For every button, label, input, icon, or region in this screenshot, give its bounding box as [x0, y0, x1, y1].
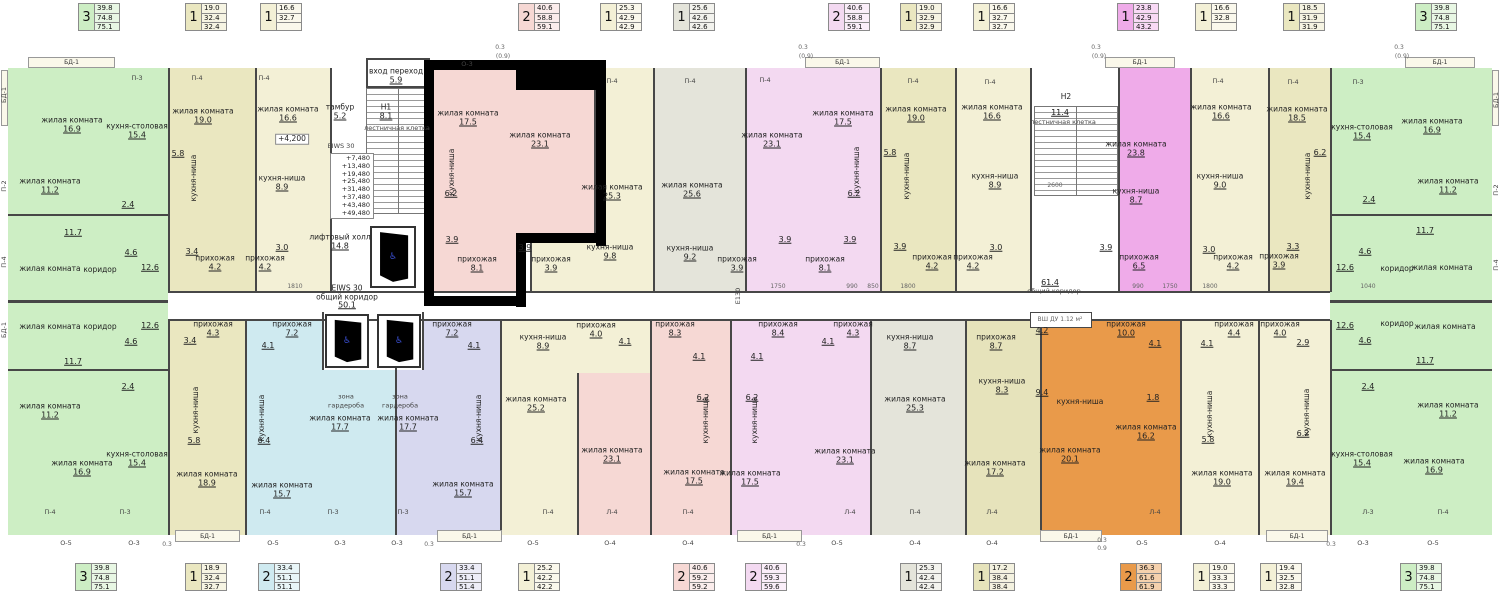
label-text: 9.2	[667, 253, 714, 262]
room-label: 11.7	[64, 229, 82, 238]
label-text: кухня-ниша	[1304, 153, 1313, 200]
label-text: 17.5	[663, 477, 724, 486]
apartment-region[interactable]	[168, 320, 245, 535]
label-text: 8.7	[887, 342, 934, 351]
room-label: лестничная клетка	[1030, 118, 1096, 127]
label-text: 17.5	[437, 118, 498, 127]
label-text: 1	[901, 564, 916, 590]
room-label: Л-4	[1149, 508, 1160, 517]
room-label: 3.0	[276, 244, 289, 253]
label-text: 61.9	[1137, 583, 1161, 592]
label-text: жилая комната	[19, 323, 80, 332]
label-text: БД-1	[200, 533, 215, 540]
apartment-badge[interactable]: 125.342.942.9	[600, 3, 642, 31]
label-text: 3.9	[519, 244, 532, 253]
label-text: лестничная клетка	[364, 124, 430, 133]
label-text: 32.4	[202, 23, 226, 32]
room-label: коридор	[1380, 265, 1413, 274]
label-text: 6.2	[746, 394, 759, 403]
label-text: 4.6	[125, 249, 138, 258]
label-text: Е130	[734, 288, 743, 305]
room-label: 4.1	[262, 342, 275, 351]
apartment-badge[interactable]: 119.032.432.4	[185, 3, 227, 31]
room-label: О-4	[986, 539, 998, 548]
label-text: 51.1	[275, 574, 299, 584]
apartment-badge[interactable]: 119.432.532.8	[1260, 563, 1302, 591]
wall	[1330, 214, 1492, 216]
apartment-badge[interactable]: 339.874.875.1	[75, 563, 117, 591]
label-text: 16.9	[51, 468, 112, 477]
room-label: жилая комната	[1414, 323, 1475, 332]
apartment-region[interactable]	[1180, 320, 1258, 535]
label-text: коридор	[1380, 320, 1413, 329]
label-text: 4.1	[751, 353, 764, 362]
label-text: 850	[867, 283, 878, 292]
apartment-badge[interactable]: 123.842.943.2	[1117, 3, 1159, 31]
label-text: 36.3	[1137, 564, 1161, 574]
wall	[1330, 300, 1492, 303]
label-text: 2	[441, 564, 456, 590]
label-text: П-4	[1437, 508, 1448, 517]
room-label: 0.3	[424, 541, 434, 550]
label-text: 1	[674, 4, 689, 30]
label-text: БД-1	[1064, 533, 1079, 540]
label-text: 16.6	[961, 112, 1022, 121]
label-text: 4.1	[468, 342, 481, 351]
apartment-badge[interactable]: 119.032.932.9	[900, 3, 942, 31]
label-text: О-3	[461, 60, 473, 69]
room-label: П-4	[1492, 259, 1500, 270]
room-label: П-4	[682, 508, 693, 517]
label-text: П-4	[907, 77, 918, 86]
label-text: 31.9	[1300, 14, 1324, 24]
label-text: 32.7	[990, 14, 1014, 24]
label-text: 3.9	[844, 236, 857, 245]
apartment-badge[interactable]: 125.642.642.6	[673, 3, 715, 31]
room-label: прихожая8.1	[805, 256, 844, 273]
label-text: 40.6	[762, 564, 786, 574]
apartment-region[interactable]	[870, 320, 965, 535]
room-label: жилая комната19.0	[1191, 470, 1252, 487]
label-text: О-3	[334, 539, 346, 548]
room-label: П-4	[259, 508, 270, 517]
label-text: 3.9	[1259, 261, 1298, 270]
label-text: 75.1	[1432, 23, 1456, 32]
wall	[1330, 68, 1332, 292]
room-label: жилая комната15.7	[251, 482, 312, 499]
room-label: кухня-ниша9.8	[587, 244, 634, 261]
room-label: жилая комната17.5	[812, 110, 873, 127]
apartment-badge[interactable]: 117.238.438.4	[973, 563, 1015, 591]
label-text: 59.1	[535, 23, 559, 32]
label-text: 1	[901, 4, 916, 30]
label-text: 9.8	[587, 252, 634, 261]
label-text: 3.9	[717, 264, 756, 273]
label-text: 1	[601, 4, 616, 30]
room-label: П-4	[759, 76, 770, 85]
room-label: 3.9	[844, 236, 857, 245]
label-text: 6.2	[1314, 149, 1327, 158]
room-label: 4.6	[125, 249, 138, 258]
label-text: 1	[186, 564, 201, 590]
badge-areas: 16.632.732.7	[989, 4, 1014, 30]
label-text: 8.7	[1113, 196, 1160, 205]
room-label: кухня-ниша	[190, 155, 199, 202]
label-text: БД-1	[64, 59, 79, 66]
label-text: Л-4	[606, 508, 617, 517]
room-label: прихожая8.7	[976, 334, 1015, 351]
room-label: О-5	[527, 539, 539, 548]
label-text: 1	[1196, 4, 1211, 30]
label-text: (0.9)	[496, 53, 510, 62]
label-text: 16.6	[1190, 112, 1251, 121]
room-label: Н18.1	[380, 104, 393, 121]
wall	[1040, 320, 1042, 535]
label-text: О-5	[267, 539, 279, 548]
apartment-badge[interactable]: 233.451.151.1	[258, 563, 300, 591]
apartment-badge[interactable]: 118.932.432.7	[185, 563, 227, 591]
label-text: 32.4	[202, 14, 226, 24]
room-label: 3.9	[779, 236, 792, 245]
label-text: П-4	[1492, 259, 1500, 270]
apartment-badge[interactable]: 118.531.931.9	[1283, 3, 1325, 31]
room-label: жилая комната16.6	[257, 106, 318, 123]
label-text: 32.7	[990, 23, 1014, 32]
label-text: 4.6	[1359, 248, 1372, 257]
label-text: 32.4	[202, 574, 226, 584]
label-text: 11.7	[1416, 227, 1434, 236]
label-text: 16.6	[277, 4, 301, 14]
label-text: (0.9)	[1092, 53, 1106, 62]
balcony: БД-1	[437, 530, 502, 542]
room-label: 4.1	[1149, 340, 1162, 349]
room-label: коридор	[83, 266, 116, 275]
label-text: 2	[259, 564, 274, 590]
label-text: 32.8	[1212, 14, 1236, 24]
label-text: 1800	[1202, 283, 1217, 292]
label-text: 3.9	[531, 264, 570, 273]
wall	[650, 320, 652, 535]
label-text: 17.2	[964, 468, 1025, 477]
label-text: 1.8	[1147, 394, 1160, 403]
label-text: 2.9	[1297, 339, 1310, 348]
room-label: 0.3	[162, 541, 172, 550]
room-label: 2.9	[1297, 339, 1310, 348]
label-text: 42.9	[1134, 14, 1158, 24]
room-label: П-4	[258, 74, 269, 83]
wall	[730, 320, 732, 535]
label-text: БД-1	[462, 533, 477, 540]
room-label: зонагардероба	[382, 393, 418, 410]
wall	[245, 320, 247, 535]
label-text: гардероба	[328, 401, 364, 410]
label-text: 4.1	[822, 338, 835, 347]
room-label: П-2	[1492, 184, 1500, 195]
room-label: 4.1	[468, 342, 481, 351]
room-label: жилая комната17.5	[437, 110, 498, 127]
label-text: 42.2	[535, 583, 559, 592]
label-text: +49,480	[334, 210, 370, 218]
room-label: кухня-ниша	[751, 397, 760, 444]
room-label: 11.4	[1051, 109, 1069, 118]
label-text: 19.4	[1277, 564, 1301, 574]
label-text: 8.3	[979, 386, 1026, 395]
badge-areas: 25.642.642.6	[689, 4, 714, 30]
label-text: 4.1	[1149, 340, 1162, 349]
apartment-badge[interactable]: 240.659.259.2	[673, 563, 715, 591]
label-text: 11.7	[1416, 357, 1434, 366]
apartment-region[interactable]	[1258, 320, 1330, 535]
room-label: жилая комната16.6	[1190, 104, 1251, 121]
room-label: 3.4	[184, 337, 197, 346]
label-text: О-4	[1214, 539, 1226, 548]
apartment-badge[interactable]: 240.658.859.1	[828, 3, 870, 31]
room-label: жилая комната16.9	[1401, 118, 1462, 135]
label-text: 17.5	[812, 118, 873, 127]
label-text: 16.6	[257, 114, 318, 123]
label-text: 16.2	[1115, 432, 1176, 441]
label-text: 3.9	[894, 243, 907, 252]
badge-areas: 40.658.859.1	[534, 4, 559, 30]
apartment-badge[interactable]: 339.874.875.1	[78, 3, 120, 31]
label-text: 3.3	[1287, 243, 1300, 252]
room-label: 0.3	[796, 541, 806, 550]
label-text: Л-4	[1149, 508, 1160, 517]
label-text: 0.3	[495, 44, 505, 53]
wall	[8, 214, 168, 216]
apartment-region[interactable]	[1330, 302, 1492, 535]
label-text: 25.6	[661, 190, 722, 199]
label-text: 25.3	[917, 564, 941, 574]
label-text: 23.1	[509, 140, 570, 149]
room-label: (0.9)	[799, 53, 813, 62]
room-label: 1800	[900, 283, 915, 292]
label-text: 58.8	[845, 14, 869, 24]
room-label: прихожая3.9	[1259, 253, 1298, 270]
apartment-badge[interactable]: 125.342.442.4	[900, 563, 942, 591]
badge-areas: 33.451.151.1	[274, 564, 299, 590]
label-text: 16.9	[1401, 126, 1462, 135]
room-label: 0.3	[1326, 541, 1336, 550]
badge-areas: 39.874.875.1	[94, 4, 119, 30]
label-text: 3.0	[276, 244, 289, 253]
label-text: 19.4	[1264, 478, 1325, 487]
label-text: 38.4	[990, 583, 1014, 592]
label-text: БД-1	[762, 533, 777, 540]
label-text: П-3	[131, 74, 142, 83]
label-text: П-4	[909, 508, 920, 517]
room-label: кухня-ниша	[1206, 391, 1215, 438]
room-label: П-3	[327, 508, 338, 517]
apartment-badge[interactable]: 240.658.859.1	[518, 3, 560, 31]
label-text: 31.9	[1300, 23, 1324, 32]
room-label: жилая комната16.6	[961, 104, 1022, 121]
label-text: кухня-ниша	[190, 155, 199, 202]
room-label: (0.9)	[1092, 53, 1106, 62]
room-label: О-3	[1357, 539, 1369, 548]
elevator-icon: ♿	[325, 314, 369, 368]
label-text: 11.7	[64, 358, 82, 367]
apartment-badge[interactable]: 125.242.242.2	[518, 563, 560, 591]
room-label: 11.7	[1416, 357, 1434, 366]
room-label: прихожая4.0	[1260, 321, 1299, 338]
room-label: П-4	[1212, 77, 1223, 86]
room-label: Л-4	[844, 508, 855, 517]
room-label: общий коридор	[1027, 287, 1080, 296]
room-label: 1750	[770, 283, 785, 292]
room-label: БД-1	[1492, 92, 1500, 108]
apartment-badge[interactable]: 240.659.359.6	[745, 563, 787, 591]
label-text: 39.8	[1417, 564, 1441, 574]
label-text: 59.2	[690, 583, 714, 592]
label-text: О-5	[831, 539, 843, 548]
label-text: 2	[674, 564, 689, 590]
label-text: 5.8	[1202, 436, 1215, 445]
label-text: 4.1	[262, 342, 275, 351]
room-label: 850	[867, 283, 878, 292]
label-text: П-2	[0, 180, 8, 191]
apartment-region[interactable]	[965, 320, 1040, 535]
label-text: 12.6	[141, 322, 159, 331]
label-text: О-3	[128, 539, 140, 548]
badge-areas: 19.033.333.3	[1209, 564, 1234, 590]
selected-apartment-outline	[516, 233, 606, 243]
room-label: 4.1	[1201, 340, 1214, 349]
room-label: 6.2	[848, 190, 861, 199]
badge-areas: 19.032.432.4	[201, 4, 226, 30]
label-text: 2.4	[1362, 383, 1375, 392]
label-text: 16.9	[41, 125, 102, 134]
apartment-badge[interactable]: 116.632.732.7	[973, 3, 1015, 31]
label-text: 61.6	[1137, 574, 1161, 584]
room-label: кухня-столовая15.4	[106, 123, 168, 140]
room-label: жилая комната	[19, 323, 80, 332]
label-text: П-2	[1492, 184, 1500, 195]
room-label: прихожая4.3	[193, 321, 232, 338]
room-label: жилая комната15.7	[432, 481, 493, 498]
room-label: П-4	[0, 256, 8, 267]
label-text: 25.3	[884, 404, 945, 413]
label-text: П-4	[258, 74, 269, 83]
apartment-badge[interactable]: 116.632.7	[260, 3, 302, 31]
label-text: 4.0	[576, 330, 615, 339]
label-text: 4.4	[1214, 329, 1253, 338]
apartment-badge[interactable]: 116.632.8	[1195, 3, 1237, 31]
label-text: 19.0	[1210, 564, 1234, 574]
room-label: прихожая7.2	[432, 321, 471, 338]
label-text: О-4	[682, 539, 694, 548]
room-label: жилая комната11.2	[19, 178, 80, 195]
apartment-badge[interactable]: 339.874.875.1	[1400, 563, 1442, 591]
label-text: коридор	[83, 323, 116, 332]
elevator-icon: ♿	[377, 314, 421, 368]
room-label: 3.9	[519, 244, 532, 253]
badge-areas: 17.238.438.4	[989, 564, 1014, 590]
apartment-badge[interactable]: 119.033.333.3	[1193, 563, 1235, 591]
room-label: 4.6	[1359, 248, 1372, 257]
label-text: (0.9)	[799, 53, 813, 62]
label-text: 4.3	[193, 329, 232, 338]
apartment-badge[interactable]: 236.361.661.9	[1120, 563, 1162, 591]
room-label: прихожая4.2	[1213, 254, 1252, 271]
label-text: БД-1	[1133, 59, 1148, 66]
room-label: 3.9	[446, 236, 459, 245]
label-text: 1	[974, 564, 989, 590]
room-label: 5.8	[1202, 436, 1215, 445]
badge-areas: 25.342.942.9	[616, 4, 641, 30]
apartment-region[interactable]	[500, 320, 577, 535]
room-label: О-4	[604, 539, 616, 548]
selected-apartment-outline	[596, 60, 606, 246]
room-label: П-4	[191, 74, 202, 83]
room-label: +4,200	[275, 134, 309, 145]
label-text: 40.6	[845, 4, 869, 14]
label-text: 1040	[1360, 283, 1375, 292]
room-label: 0.3	[798, 44, 808, 53]
room-label: кухня-ниша8.9	[520, 334, 567, 351]
room-label: прихожая4.2	[245, 255, 284, 272]
room-label: жилая комната16.9	[1403, 458, 1464, 475]
balcony: БД-1	[1266, 530, 1328, 542]
badge-areas: 36.361.661.9	[1136, 564, 1161, 590]
room-label: жилая комната17.2	[964, 460, 1025, 477]
room-label: жилая комната18.9	[176, 471, 237, 488]
label-text: 15.7	[251, 490, 312, 499]
wall	[8, 369, 168, 371]
room-label: зонагардероба	[328, 393, 364, 410]
room-label: (0.9)	[1395, 53, 1409, 62]
room-label: 4.1	[822, 338, 835, 347]
apartment-badge[interactable]: 233.451.151.4	[440, 563, 482, 591]
room-label: 0.3	[1394, 44, 1404, 53]
badge-areas: 25.242.242.2	[534, 564, 559, 590]
label-text: 75.1	[95, 23, 119, 32]
label-text: 33.4	[275, 564, 299, 574]
label-text: 16.6	[990, 4, 1014, 14]
room-label: П-2	[0, 180, 8, 191]
room-label: жилая комната16.9	[51, 460, 112, 477]
room-label: 5.8	[188, 437, 201, 446]
room-label: вход переход5.9	[369, 68, 423, 85]
label-text: 14.8	[309, 242, 370, 251]
room-label: жилая комната11.2	[19, 403, 80, 420]
label-text: 2	[829, 4, 844, 30]
room-label: кухня-ниша8.7	[887, 334, 934, 351]
balcony: БД-1	[1405, 57, 1475, 68]
label-text: 58.8	[535, 14, 559, 24]
room-label: EIWS 30общий коридор50.1	[316, 284, 378, 310]
wall	[500, 320, 502, 535]
apartment-badge[interactable]: 339.874.875.1	[1415, 3, 1457, 31]
label-text: кухня-ниша	[702, 397, 711, 444]
label-text: 2	[1121, 564, 1136, 590]
label-text: БД-1	[0, 87, 8, 103]
room-label: кухня-ниша	[702, 397, 711, 444]
room-label: О-3	[461, 60, 473, 69]
label-text: О-5	[1427, 539, 1439, 548]
label-text: коридор	[1380, 265, 1413, 274]
label-text: 5.2	[326, 112, 354, 121]
room-label: Н2	[1061, 93, 1071, 102]
apartment-region[interactable]	[650, 320, 730, 535]
label-text: 42.2	[535, 574, 559, 584]
room-label: прихожая4.3	[833, 321, 872, 338]
room-label: П-4	[1437, 508, 1448, 517]
label-text: П-4	[191, 74, 202, 83]
label-text: 50.1	[316, 301, 378, 310]
label-text: 1	[1284, 4, 1299, 30]
room-label: жилая комната23.8	[1105, 141, 1166, 158]
